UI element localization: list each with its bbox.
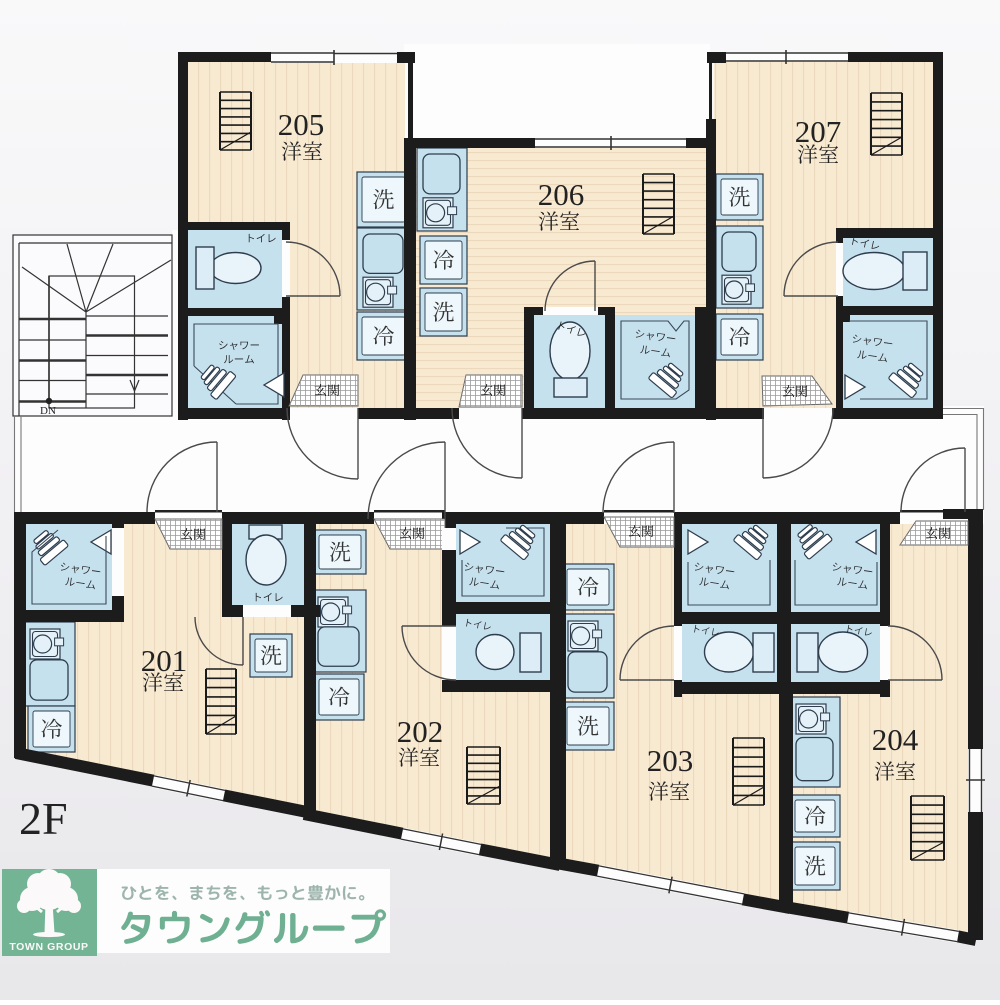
svg-text:205: 205 [278,107,325,142]
svg-text:DN: DN [40,405,56,417]
svg-text:201: 201 [141,643,188,678]
svg-text:202: 202 [397,714,444,749]
svg-text:206: 206 [538,177,585,212]
svg-text:204: 204 [872,722,919,757]
svg-text:2F: 2F [19,793,68,844]
svg-text:TOWN GROUP: TOWN GROUP [9,941,88,953]
svg-text:203: 203 [647,743,694,778]
svg-text:207: 207 [795,114,842,149]
